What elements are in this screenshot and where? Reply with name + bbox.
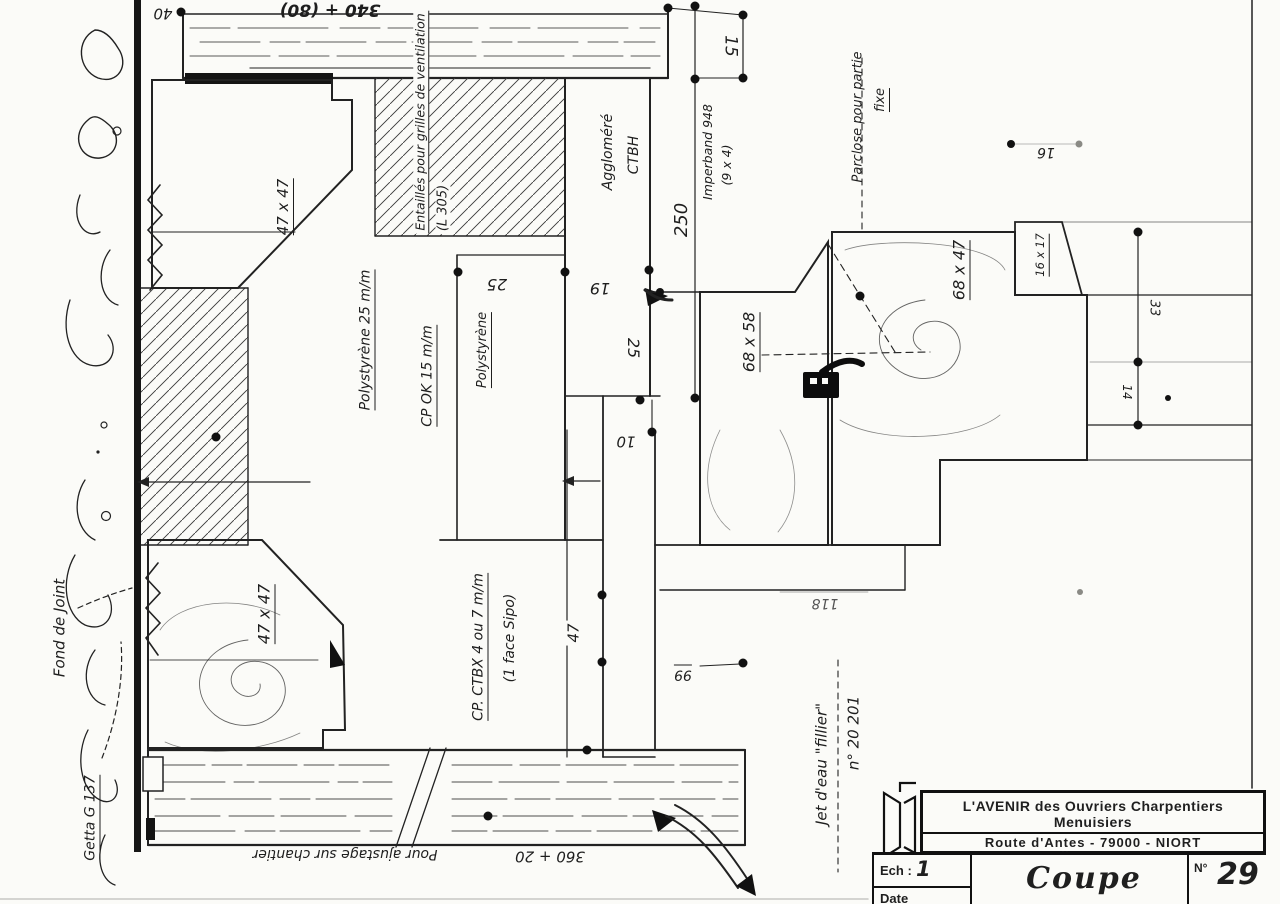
label-fond-de-joint: Fond de Joint — [53, 579, 68, 677]
label-entailles-1: Entaillés pour grilles de ventilation — [413, 10, 429, 233]
bottom-rail — [143, 748, 745, 847]
title-block-company: L'AVENIR des Ouvriers Charpentiers Menui… — [920, 790, 1266, 854]
label-dim-118: 118 — [812, 596, 839, 610]
jet-deau-profile — [652, 805, 756, 896]
label-dim-19: 19 — [590, 280, 610, 296]
label-polystyrene-25: Polystyrène 25 m/m — [359, 270, 376, 411]
label-cp-ctbx-1: CP. CTBX 4 ou 7 m/m — [472, 573, 489, 721]
label-ajustage: Pour ajustage sur chantier — [253, 847, 438, 861]
label-dim-99: 99 — [674, 665, 692, 682]
company-address: Route d'Antes - 79000 - NIORT — [923, 835, 1263, 850]
label-imperband-2: (9 x 4) — [721, 144, 734, 185]
label-size-68x47: 68 x 47 — [952, 240, 971, 300]
drawing-title: Coupe — [984, 861, 1184, 896]
company-name: L'AVENIR des Ouvriers Charpentiers Menui… — [923, 798, 1263, 834]
label-cp-ctbx-2: (1 face Sipo) — [503, 594, 517, 683]
label-jet-deau: Jet d'eau "fillier" — [815, 703, 830, 825]
label-size-47x47-bottom: 47 x 47 — [257, 584, 276, 644]
number-value: 29 — [1217, 857, 1259, 892]
label-imperband-1: Imperband 948 — [702, 104, 715, 200]
number-label: N° — [1194, 861, 1207, 875]
label-dim-25-left: 25 — [487, 276, 507, 292]
cell-divider — [970, 855, 972, 904]
label-dim-340-80: 340 + (80) — [280, 1, 381, 18]
bottom-left-timber — [148, 540, 345, 751]
dimension-dots — [177, 2, 1258, 821]
label-agglomere-1: Aggloméré — [601, 114, 615, 190]
label-dim-15: 15 — [722, 35, 739, 57]
scale-value: 1 — [916, 857, 931, 881]
label-size-16x17: 16 x 17 — [1035, 233, 1050, 276]
scale-label: Ech : — [880, 863, 912, 878]
corner-piece-top-left — [152, 80, 352, 288]
label-parclose-1: Parclose pour partie — [852, 52, 865, 183]
label-dim-33: 33 — [1148, 300, 1161, 317]
label-dim-25-right: 25 — [625, 338, 641, 358]
label-dim-250: 250 — [673, 203, 691, 237]
label-polystyrene: Polystyrène — [476, 312, 492, 388]
label-numero: n° 20 201 — [847, 696, 862, 770]
scale-cell: Ech : 1 — [874, 855, 970, 888]
label-dim-16-top: 16 — [1037, 145, 1055, 159]
label-size-47x47-top: 47 x 47 — [276, 179, 294, 236]
scanned-technical-drawing: 340 + (80) 40 Entaillés pour grilles de … — [0, 0, 1280, 904]
label-dim-47: 47 — [566, 620, 583, 645]
label-size-68x58: 68 x 58 — [742, 312, 761, 372]
label-dim-40: 40 — [153, 6, 172, 21]
number-cell: N° 29 — [1187, 855, 1270, 904]
date-label: Date — [880, 891, 908, 904]
label-agglomere-2: CTBH — [627, 136, 641, 174]
label-dim-14: 14 — [1121, 384, 1133, 399]
label-entailles-2: (L 305) — [436, 182, 451, 234]
label-parclose-2: fixe — [874, 88, 890, 112]
label-cp-ok: CP OK 15 m/m — [421, 325, 438, 427]
label-getta: Getta G 137 — [84, 775, 101, 861]
title-block-row: Ech : 1 Date Coupe N° 29 — [872, 852, 1266, 904]
label-dim-10: 10 — [616, 434, 635, 449]
label-dim-360-20: 360 + 20 — [515, 849, 585, 864]
